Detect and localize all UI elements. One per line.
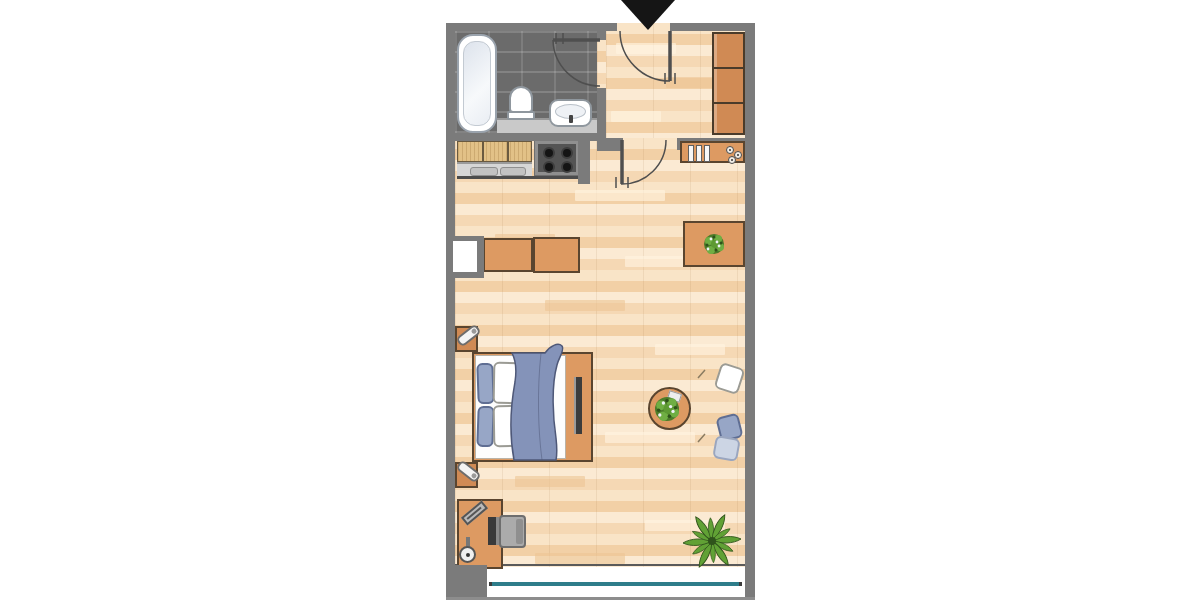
wall-divider-left <box>597 138 623 151</box>
bathroom-doorway-threshold <box>597 40 606 88</box>
wall-hook <box>728 156 736 164</box>
entrance-arrow-icon <box>621 0 675 30</box>
stove-burner <box>561 147 573 159</box>
faucet <box>569 115 573 123</box>
stove <box>534 140 580 176</box>
wall-top-right <box>670 23 755 31</box>
wardrobe-divider <box>714 102 743 104</box>
bathtub <box>457 34 497 133</box>
sideboard-right-section <box>533 237 580 273</box>
sink-basin <box>470 167 498 176</box>
wall-right <box>745 23 755 600</box>
computer-monitor <box>488 517 499 545</box>
kitchen-sink-counter <box>457 162 532 176</box>
desk-chair <box>499 515 526 548</box>
bathroom-sink <box>549 99 592 127</box>
wall-kitchen-stub <box>578 138 590 184</box>
floor-plan <box>446 0 755 600</box>
hall-wardrobe <box>712 32 745 135</box>
cabinet-divider <box>507 142 509 161</box>
wall-left <box>446 23 455 567</box>
pillow-white <box>493 362 525 405</box>
pillow-white <box>493 405 525 448</box>
wall-top-left <box>446 23 617 31</box>
wall-niche <box>453 241 477 272</box>
dining-table <box>683 221 745 267</box>
wall-bottom-left-column <box>446 565 487 600</box>
stove-burner <box>543 161 555 173</box>
wall-bathroom-right-upper <box>597 23 606 40</box>
window-glass-line <box>489 582 742 586</box>
desk-chair-back <box>516 519 523 544</box>
floor-plan-image <box>0 0 1200 600</box>
stove-burner <box>561 161 573 173</box>
desk-lamp <box>459 546 476 563</box>
stove-burner <box>543 147 555 159</box>
book <box>688 145 694 162</box>
toilet-seat <box>507 111 535 120</box>
wall-shelf <box>680 141 745 163</box>
counter-front-edge <box>457 176 580 179</box>
wall-hook <box>726 146 734 154</box>
wardrobe-divider <box>714 67 743 69</box>
sofa-pillow-light <box>712 435 741 462</box>
kitchen-cabinets <box>457 141 532 162</box>
book <box>704 145 710 162</box>
sideboard-left-section <box>483 238 533 272</box>
toilet <box>509 86 533 113</box>
foot-wardrobe-panel <box>574 377 582 434</box>
sink-drainer <box>500 167 526 176</box>
cabinet-divider <box>482 142 484 161</box>
book <box>696 145 702 162</box>
